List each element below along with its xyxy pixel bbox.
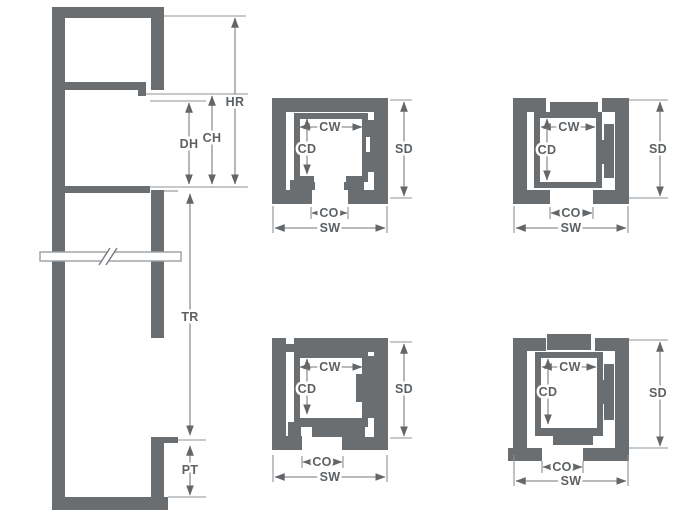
co-label: CO	[319, 206, 338, 220]
door-jamb-block	[302, 182, 315, 190]
guide-rail-notch	[366, 137, 370, 152]
section-view: DH CH HR TR PT	[40, 7, 248, 510]
hoistway-wall	[513, 338, 527, 448]
cd-dimension: CD	[538, 119, 557, 180]
door-jamb-block	[344, 182, 364, 190]
door-offset-bar	[312, 427, 365, 437]
tr-label: TR	[181, 310, 198, 324]
hr-label: HR	[226, 95, 245, 109]
sd-label: SD	[395, 382, 413, 396]
plan-top-center: CW CD SD CO SW	[272, 98, 413, 235]
co-dimension: CO	[550, 206, 593, 220]
car-wall	[294, 113, 368, 119]
co-dimension: CO	[311, 206, 348, 220]
cd-label: CD	[539, 385, 558, 399]
car-wall	[534, 182, 602, 188]
diagram-svg: DH CH HR TR PT	[0, 0, 696, 519]
co-label: CO	[312, 455, 331, 469]
machine-block	[547, 334, 591, 350]
sd-label: SD	[395, 142, 413, 156]
hoistway-wall	[513, 98, 527, 204]
car-wall	[534, 112, 602, 118]
sd-dimension: SD	[629, 100, 668, 198]
plan-bottom-center: CW CD SD CO SW	[272, 338, 413, 484]
door-jamb-block	[288, 422, 301, 437]
cw-label: CW	[559, 360, 580, 374]
pit-floor-slab	[52, 497, 168, 510]
hoistway-wall	[615, 98, 629, 204]
sd-dimension: SD	[390, 100, 413, 198]
hoistway-wall	[374, 338, 388, 450]
hoistway-wall	[272, 190, 312, 204]
plan-top-right: CW CD SD CO SW	[513, 98, 668, 235]
guide-rail-block	[356, 374, 364, 402]
sw-label: SW	[320, 470, 341, 484]
counterweight-block	[604, 124, 614, 178]
car-wall	[294, 418, 368, 427]
wall-notch	[286, 338, 294, 344]
sd-dimension: SD	[629, 340, 668, 448]
hoistway-wall	[374, 98, 388, 204]
sd-label: SD	[649, 142, 667, 156]
car-wall	[535, 352, 603, 358]
door-jamb-block	[290, 180, 302, 190]
hoistway-wall	[508, 448, 542, 461]
sw-label: SW	[320, 221, 341, 235]
cw-dimension: CW	[541, 120, 595, 134]
cd-label: CD	[538, 143, 557, 157]
shaft-top-wall	[52, 7, 164, 18]
cd-dimension: CD	[539, 359, 558, 424]
hoistway-wall	[615, 338, 629, 448]
co-label: CO	[561, 206, 580, 220]
cd-label: CD	[298, 142, 317, 156]
counterweight-block	[597, 380, 605, 404]
dh-dimension: DH	[180, 103, 199, 184]
cw-dimension: CW	[542, 360, 596, 374]
cd-label: CD	[298, 382, 317, 396]
hoistway-wall	[272, 338, 286, 436]
dh-label: DH	[180, 137, 199, 151]
door-header-hook	[138, 82, 146, 96]
cw-dimension: CW	[300, 360, 362, 374]
co-dimension: CO	[542, 460, 583, 474]
ch-label: CH	[203, 131, 222, 145]
landing-floor-slab	[64, 186, 150, 193]
pit-sill-stub	[164, 437, 178, 443]
shaft-mid-right-wall	[151, 190, 164, 338]
hoistway-wall	[513, 190, 550, 204]
co-label: CO	[552, 460, 571, 474]
sw-label: SW	[561, 474, 582, 488]
plan-bottom-right: CW CD SD CO SW	[508, 334, 668, 488]
ch-dimension: CH	[203, 96, 222, 184]
guide-rail-block	[364, 356, 374, 418]
tr-dimension: TR	[181, 194, 198, 435]
hoistway-wall	[348, 190, 388, 204]
cw-label: CW	[319, 120, 340, 134]
door-offset-bar	[553, 436, 593, 445]
cw-label: CW	[319, 360, 340, 374]
car-wall	[535, 428, 603, 436]
cw-dimension: CW	[300, 120, 362, 134]
shaft-upper-right-wall	[151, 7, 164, 90]
counterweight-block	[604, 364, 614, 420]
car-wall	[346, 176, 368, 182]
sd-label: SD	[649, 386, 667, 400]
pt-dimension: PT	[182, 446, 199, 495]
hoistway-wall	[593, 190, 629, 204]
door-header-slab	[64, 82, 146, 90]
hoistway-wall	[342, 437, 388, 450]
sd-dimension: SD	[390, 342, 413, 438]
hoistway-wall	[272, 436, 302, 450]
pt-label: PT	[182, 463, 199, 477]
shaft-pit-right-wall	[151, 437, 164, 504]
hoistway-wall	[272, 98, 286, 204]
elevator-dimension-diagram: DH CH HR TR PT	[0, 0, 696, 519]
hr-dimension: HR	[226, 18, 245, 184]
cw-label: CW	[558, 120, 579, 134]
hoistway-wall	[272, 98, 388, 112]
co-dimension: CO	[302, 455, 343, 469]
car-wall	[294, 352, 368, 358]
hoistway-wall	[583, 448, 629, 461]
sw-label: SW	[561, 221, 582, 235]
counterweight-block	[597, 140, 605, 164]
